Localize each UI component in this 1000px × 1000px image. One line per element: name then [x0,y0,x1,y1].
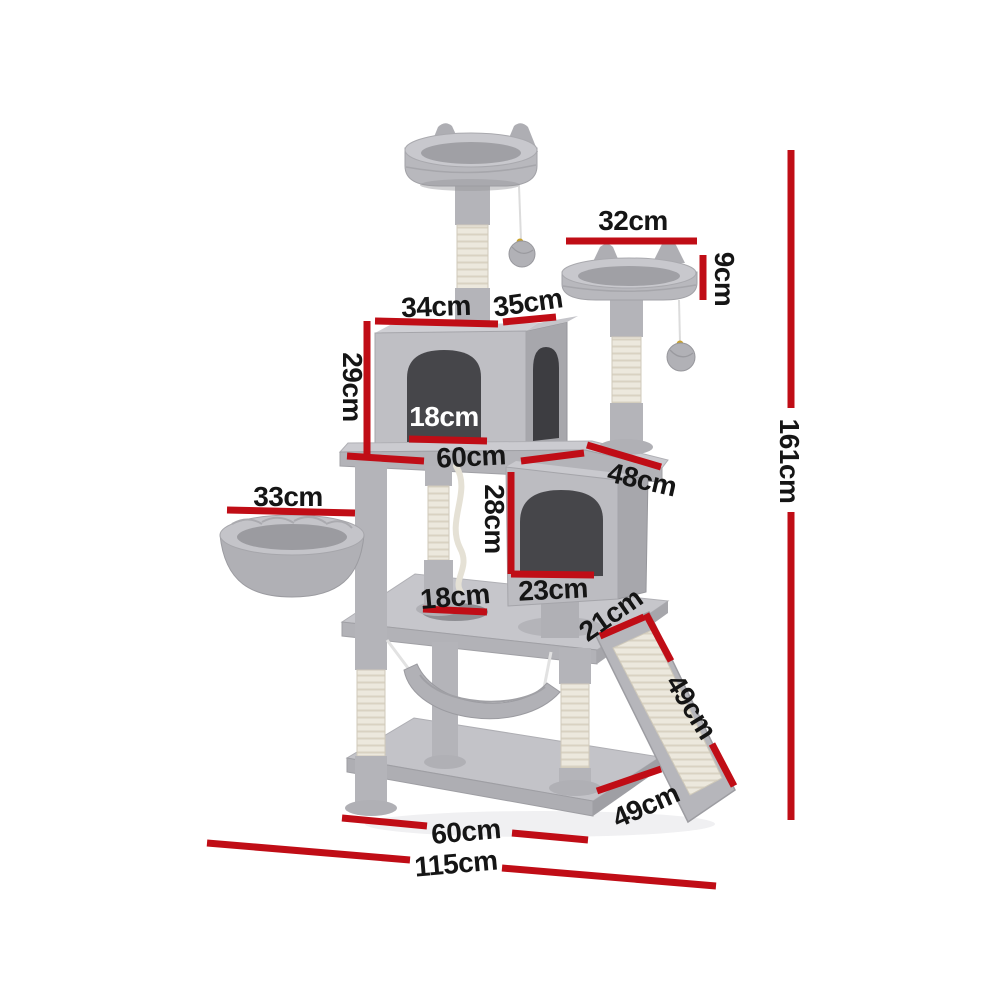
cat-tree-dimension-diagram: 32cm 9cm 34cm 35cm 29cm 18cm 60cm 48cm 3… [0,0,1000,1000]
upper-condo [375,316,578,458]
dim-label-total-height: 161cm [775,419,803,504]
dim-label-middle-platform-width: 60cm [436,441,507,473]
dim-label-basket-width: 33cm [253,483,323,511]
dim-label-upper-condo-height: 29cm [338,352,366,422]
dim-label-lower-condo-door-width: 23cm [518,574,589,606]
dim-label-lower-condo-door-height: 28cm [480,484,508,554]
condo-doorway [407,350,481,447]
hanging-ball-toy-top [509,186,535,267]
dim-label-top-perch-height: 9cm [710,252,738,307]
dim-label-platform-hole: 18cm [419,580,491,614]
dim-line-overall-width-b [502,868,716,886]
second-perch-post [599,295,653,455]
dim-label-upper-condo-door: 18cm [409,403,479,431]
hanging-ball-toy-second [667,300,695,371]
base-platform [347,718,660,816]
dim-label-top-perch-width: 32cm [598,207,668,235]
hanging-basket [220,515,364,597]
top-perch [405,123,538,191]
condo-side-opening [533,347,559,441]
climbing-rope [456,466,464,592]
dim-line-middle-platform-left [347,456,424,461]
second-perch [562,242,697,300]
dim-line-overall-width-a [207,843,410,860]
condo-doorway [520,490,603,577]
dim-label-upper-condo-width: 34cm [401,292,472,322]
dim-label-overall-width: 115cm [413,846,498,881]
